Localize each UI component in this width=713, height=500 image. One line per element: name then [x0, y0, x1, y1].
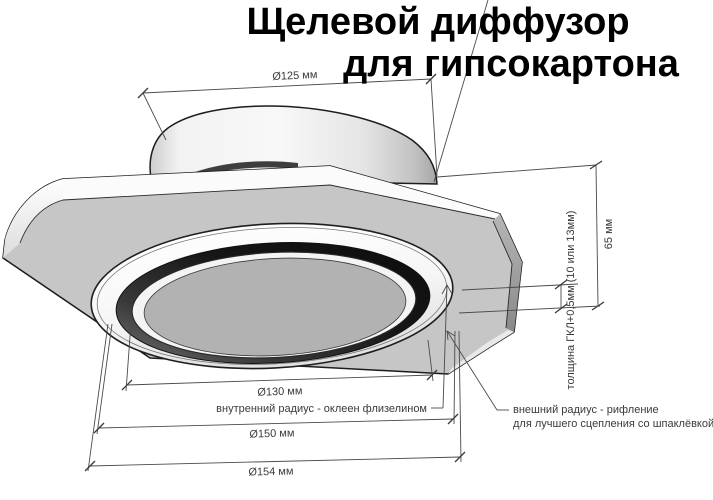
ext-line: [437, 165, 596, 177]
ext-line: [143, 93, 166, 140]
dim-line: [90, 457, 460, 466]
dim-line: [596, 165, 598, 306]
technical-drawing-canvas: Ø125 мм 65 мм толщина ГКЛ+0,5мм (10 или …: [0, 0, 713, 500]
title-line-2: для гипсокартона: [343, 43, 680, 85]
diffuser-drawing: Ø125 мм 65 мм толщина ГКЛ+0,5мм (10 или …: [0, 0, 713, 500]
ext-line: [97, 324, 112, 434]
dim-label-duct-diameter: Ø125 мм: [272, 69, 318, 83]
dim-line: [127, 375, 432, 385]
dim-line: [99, 419, 453, 428]
dim-label-inner-diameter: Ø130 мм: [257, 385, 302, 398]
ext-line: [88, 324, 108, 471]
dim-label-outer-diameter: Ø150 мм: [249, 427, 294, 440]
dim-label-flange-diameter: Ø154 мм: [248, 465, 293, 478]
note-inner-radius: внутренний радиус - оклеен флизелином: [216, 403, 427, 415]
title-line-1: Щелевой диффузор: [246, 1, 629, 43]
note-outer-radius-line2: для лучшего сцепления со шпаклёвкой: [513, 418, 713, 430]
dim-label-plate-thickness: толщина ГКЛ+0,5мм (10 или 13мм): [565, 211, 577, 390]
ext-line: [431, 79, 437, 176]
dim-label-height: 65 мм: [603, 219, 615, 249]
note-outer-radius-line1: внешний радиус - рифление: [513, 404, 659, 416]
